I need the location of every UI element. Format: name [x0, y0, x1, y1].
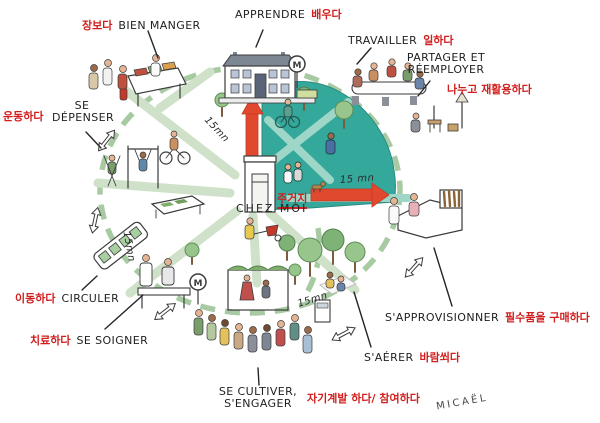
- label-circuler: 이동하다 CIRCULER: [15, 290, 119, 306]
- circuler-french: CIRCULER: [61, 292, 119, 305]
- se-soigner-korean: 치료하다: [30, 332, 70, 348]
- metro-sign: M: [190, 274, 206, 304]
- label-partager-reemployer: PARTAGER ET RÉEMPLOYER: [406, 52, 486, 76]
- se-cultiver-korean: 자기계발 하다/ 참여하다: [307, 390, 420, 406]
- se-depenser-french-line2: DÉPENSER: [52, 112, 112, 124]
- se-depenser-korean: 운동하다: [3, 108, 43, 124]
- partager-french-line2: RÉEMPLOYER: [406, 64, 486, 76]
- bien-manger-korean: 장보다: [82, 17, 112, 33]
- label-s-aerer: S'AÉRER 바람쐬다: [364, 349, 460, 365]
- s-aerer-french: S'AÉRER: [364, 351, 414, 364]
- label-se-depenser: SE DÉPENSER: [52, 100, 112, 124]
- label-s-approvisionner: S'APPROVISIONNER 필수품을 구매하다: [385, 309, 590, 325]
- illustration-canvas: M M 장보다 BIEN MANGER APPRENDRE 배우다 TRAVAI…: [0, 0, 600, 423]
- chez-moi-label: CHEZ MOI: [236, 202, 307, 215]
- s-aerer-korean: 바람쐬다: [420, 349, 460, 365]
- se-cultiver-french-line2: S'ENGAGER: [212, 398, 304, 410]
- garden-planter: [152, 196, 204, 218]
- apprendre-korean: 배우다: [311, 6, 341, 22]
- label-se-soigner: 치료하다 SE SOIGNER: [30, 332, 148, 348]
- partager-korean: 나누고 재활용하다: [447, 81, 532, 97]
- label-se-cultiver: SE CULTIVER, S'ENGAGER: [212, 386, 304, 410]
- s-approvisionner-french: S'APPROVISIONNER: [385, 311, 499, 324]
- svg-text:M: M: [293, 61, 302, 71]
- travailler-korean: 일하다: [423, 32, 453, 48]
- label-travailler: TRAVAILLER 일하다: [348, 32, 454, 48]
- travailler-french: TRAVAILLER: [348, 34, 417, 47]
- red-arrow-up: [242, 95, 263, 158]
- label-apprendre: APPRENDRE 배우다: [235, 6, 342, 22]
- s-approvisionner-korean: 필수품을 구매하다: [505, 309, 590, 325]
- svg-text:M: M: [194, 279, 203, 289]
- furniture-repair-scene: [428, 92, 468, 132]
- apprendre-french: APPRENDRE: [235, 8, 305, 21]
- bien-manger-french: BIEN MANGER: [118, 19, 200, 32]
- label-bien-manger: 장보다 BIEN MANGER: [82, 17, 201, 33]
- se-soigner-french: SE SOIGNER: [76, 334, 148, 347]
- circuler-korean: 이동하다: [15, 290, 55, 306]
